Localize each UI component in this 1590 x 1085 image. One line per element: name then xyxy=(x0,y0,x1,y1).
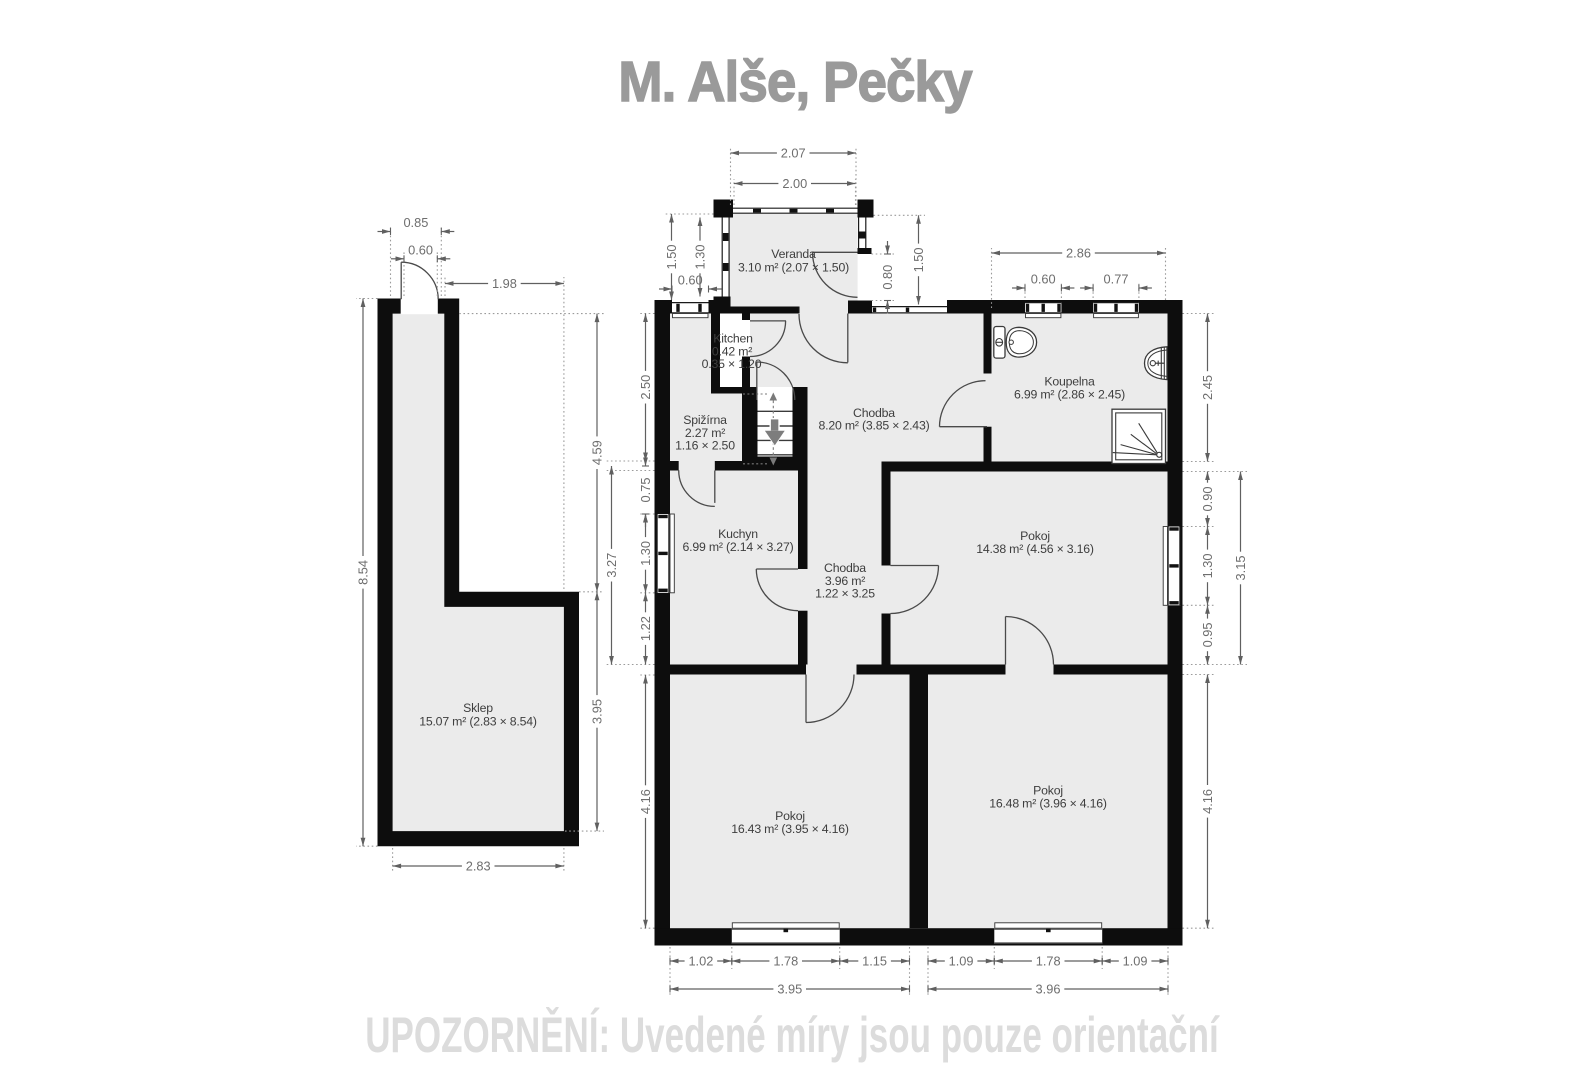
svg-text:8.20 m² (3.85 × 2.43): 8.20 m² (3.85 × 2.43) xyxy=(819,419,930,433)
svg-text:1.09: 1.09 xyxy=(1123,954,1148,969)
svg-text:14.38 m² (4.56 × 3.16): 14.38 m² (4.56 × 3.16) xyxy=(976,542,1094,556)
svg-text:16.43 m² (3.95 × 4.16): 16.43 m² (3.95 × 4.16) xyxy=(731,822,849,836)
svg-text:M. Alše, Pečky: M. Alše, Pečky xyxy=(618,49,973,113)
svg-text:1.78: 1.78 xyxy=(1036,954,1061,969)
svg-text:0.90: 0.90 xyxy=(1200,487,1215,512)
svg-text:3.10 m² (2.07 × 1.50): 3.10 m² (2.07 × 1.50) xyxy=(738,261,849,275)
svg-text:1.98: 1.98 xyxy=(492,276,517,291)
svg-text:1.30: 1.30 xyxy=(1200,553,1215,578)
svg-text:1.02: 1.02 xyxy=(688,954,713,969)
svg-text:Pokoj: Pokoj xyxy=(775,809,805,823)
svg-text:8.54: 8.54 xyxy=(356,560,371,585)
svg-text:0.95: 0.95 xyxy=(1200,622,1215,647)
svg-text:2.83: 2.83 xyxy=(466,859,491,874)
svg-text:Kuchyn: Kuchyn xyxy=(718,527,758,541)
svg-text:Pokoj: Pokoj xyxy=(1033,784,1063,798)
svg-text:0.60: 0.60 xyxy=(408,242,433,257)
svg-text:15.07 m² (2.83 × 8.54): 15.07 m² (2.83 × 8.54) xyxy=(419,715,537,729)
svg-text:1.22: 1.22 xyxy=(638,616,653,641)
svg-text:1.30: 1.30 xyxy=(638,541,653,566)
svg-text:1.50: 1.50 xyxy=(911,247,926,272)
svg-text:1.22 × 3.25: 1.22 × 3.25 xyxy=(815,587,875,601)
svg-text:2.50: 2.50 xyxy=(638,375,653,400)
svg-text:0.60: 0.60 xyxy=(1031,272,1056,287)
svg-text:0.35 × 1.20: 0.35 × 1.20 xyxy=(702,357,762,371)
svg-text:Kitchen: Kitchen xyxy=(713,332,753,346)
svg-text:2.45: 2.45 xyxy=(1200,375,1215,400)
svg-text:Pokoj: Pokoj xyxy=(1020,529,1050,543)
svg-text:2.07: 2.07 xyxy=(781,146,806,161)
svg-text:1.16 × 2.50: 1.16 × 2.50 xyxy=(675,439,735,453)
svg-text:3.96: 3.96 xyxy=(1036,982,1061,997)
svg-text:1.30: 1.30 xyxy=(693,245,708,270)
svg-text:4.16: 4.16 xyxy=(638,789,653,814)
svg-text:Spižírna: Spižírna xyxy=(683,413,727,427)
svg-text:3.95: 3.95 xyxy=(777,982,802,997)
svg-text:2.86: 2.86 xyxy=(1066,246,1091,261)
svg-text:0.85: 0.85 xyxy=(403,215,428,230)
svg-text:0.60: 0.60 xyxy=(678,273,703,288)
svg-text:4.16: 4.16 xyxy=(1200,789,1215,814)
svg-text:6.99 m² (2.14 × 3.27): 6.99 m² (2.14 × 3.27) xyxy=(683,540,794,554)
svg-text:1.78: 1.78 xyxy=(773,954,798,969)
svg-text:UPOZORNĚNÍ: Uvedené míry jsou: UPOZORNĚNÍ: Uvedené míry jsou pouze orie… xyxy=(365,1007,1220,1064)
svg-text:6.99 m² (2.86 × 2.45): 6.99 m² (2.86 × 2.45) xyxy=(1014,388,1125,402)
svg-text:3.95: 3.95 xyxy=(590,699,605,724)
svg-text:0.80: 0.80 xyxy=(880,265,895,290)
svg-text:16.48 m² (3.96 × 4.16): 16.48 m² (3.96 × 4.16) xyxy=(989,797,1107,811)
svg-text:1.09: 1.09 xyxy=(949,954,974,969)
svg-text:1.50: 1.50 xyxy=(664,245,679,270)
svg-text:2.00: 2.00 xyxy=(782,176,807,191)
svg-text:Chodba: Chodba xyxy=(824,561,866,575)
svg-text:Veranda: Veranda xyxy=(771,247,816,261)
svg-text:3.27: 3.27 xyxy=(604,553,619,578)
svg-text:0.75: 0.75 xyxy=(638,478,653,503)
svg-text:1.15: 1.15 xyxy=(862,954,887,969)
svg-text:Sklep: Sklep xyxy=(463,701,493,715)
svg-text:Koupelna: Koupelna xyxy=(1044,375,1095,389)
svg-text:4.59: 4.59 xyxy=(590,440,605,465)
svg-text:0.77: 0.77 xyxy=(1104,272,1129,287)
svg-text:3.15: 3.15 xyxy=(1233,556,1248,581)
